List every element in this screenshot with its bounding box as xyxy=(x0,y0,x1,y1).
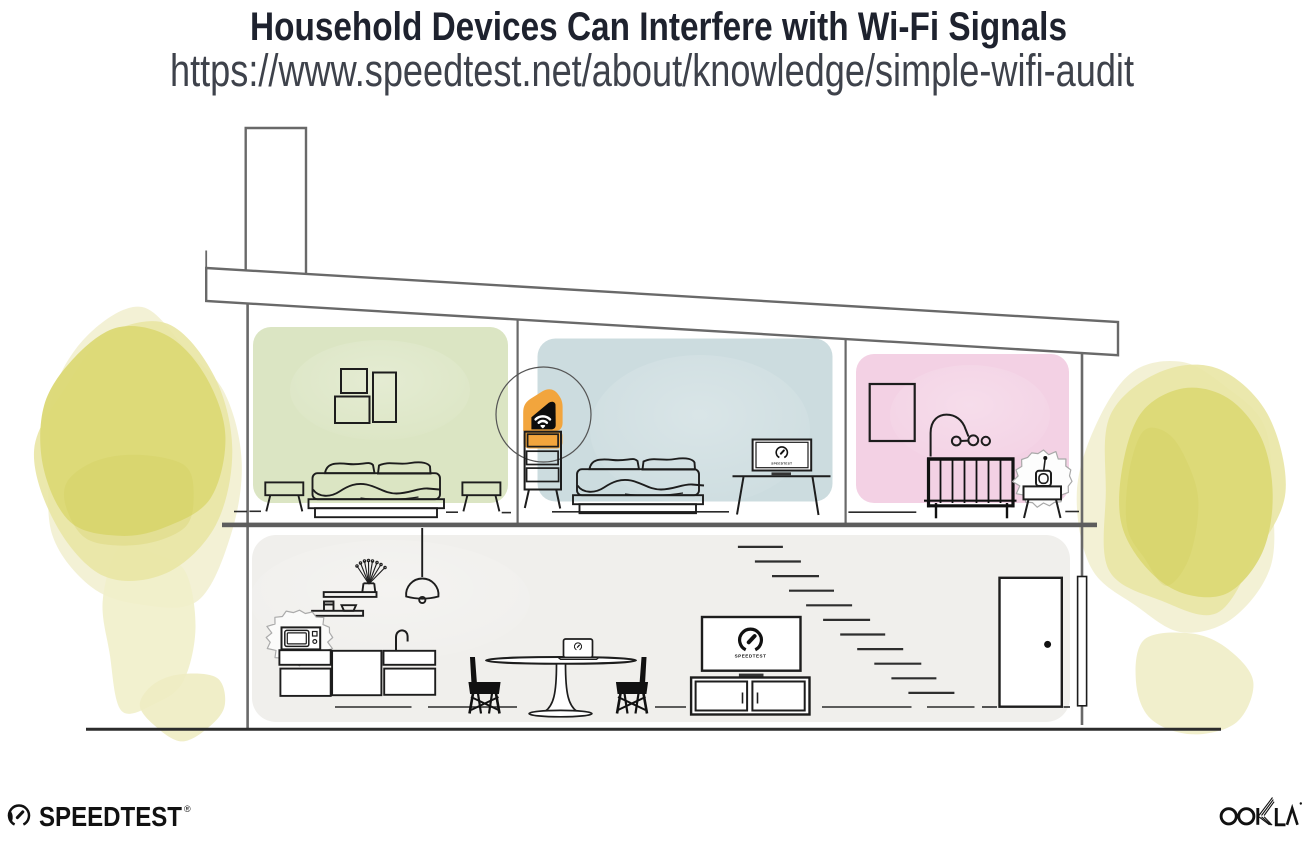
svg-text:SPEEDTEST: SPEEDTEST xyxy=(735,654,767,659)
svg-text:SPEEDTEST: SPEEDTEST xyxy=(771,462,792,466)
svg-text:®: ® xyxy=(184,804,191,814)
svg-text:Household Devices Can Interfer: Household Devices Can Interfere with Wi-… xyxy=(250,5,1067,49)
svg-text:https://www.speedtest.net/abou: https://www.speedtest.net/about/knowledg… xyxy=(170,45,1134,96)
svg-text:SPEEDTEST: SPEEDTEST xyxy=(39,801,182,832)
